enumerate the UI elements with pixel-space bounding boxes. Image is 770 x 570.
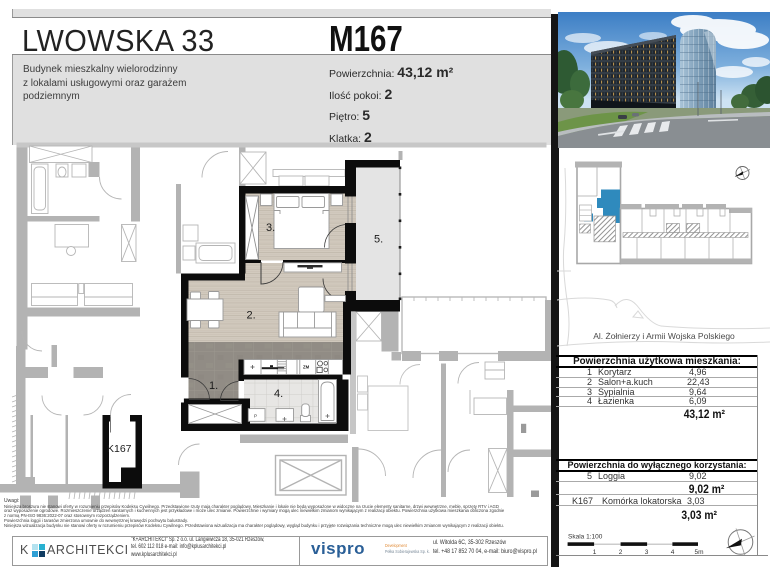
svg-text:Skala 1:100: Skala 1:100 [568, 534, 603, 541]
svg-text:3.: 3. [266, 222, 275, 234]
svg-text:4.: 4. [274, 388, 283, 400]
svg-text:5.: 5. [374, 234, 383, 246]
svg-text:P: P [254, 413, 257, 418]
svg-text:2.: 2. [247, 310, 256, 322]
svg-text:ZM: ZM [303, 365, 310, 370]
svg-text:1.: 1. [209, 380, 218, 392]
svg-text:K167: K167 [107, 443, 132, 455]
